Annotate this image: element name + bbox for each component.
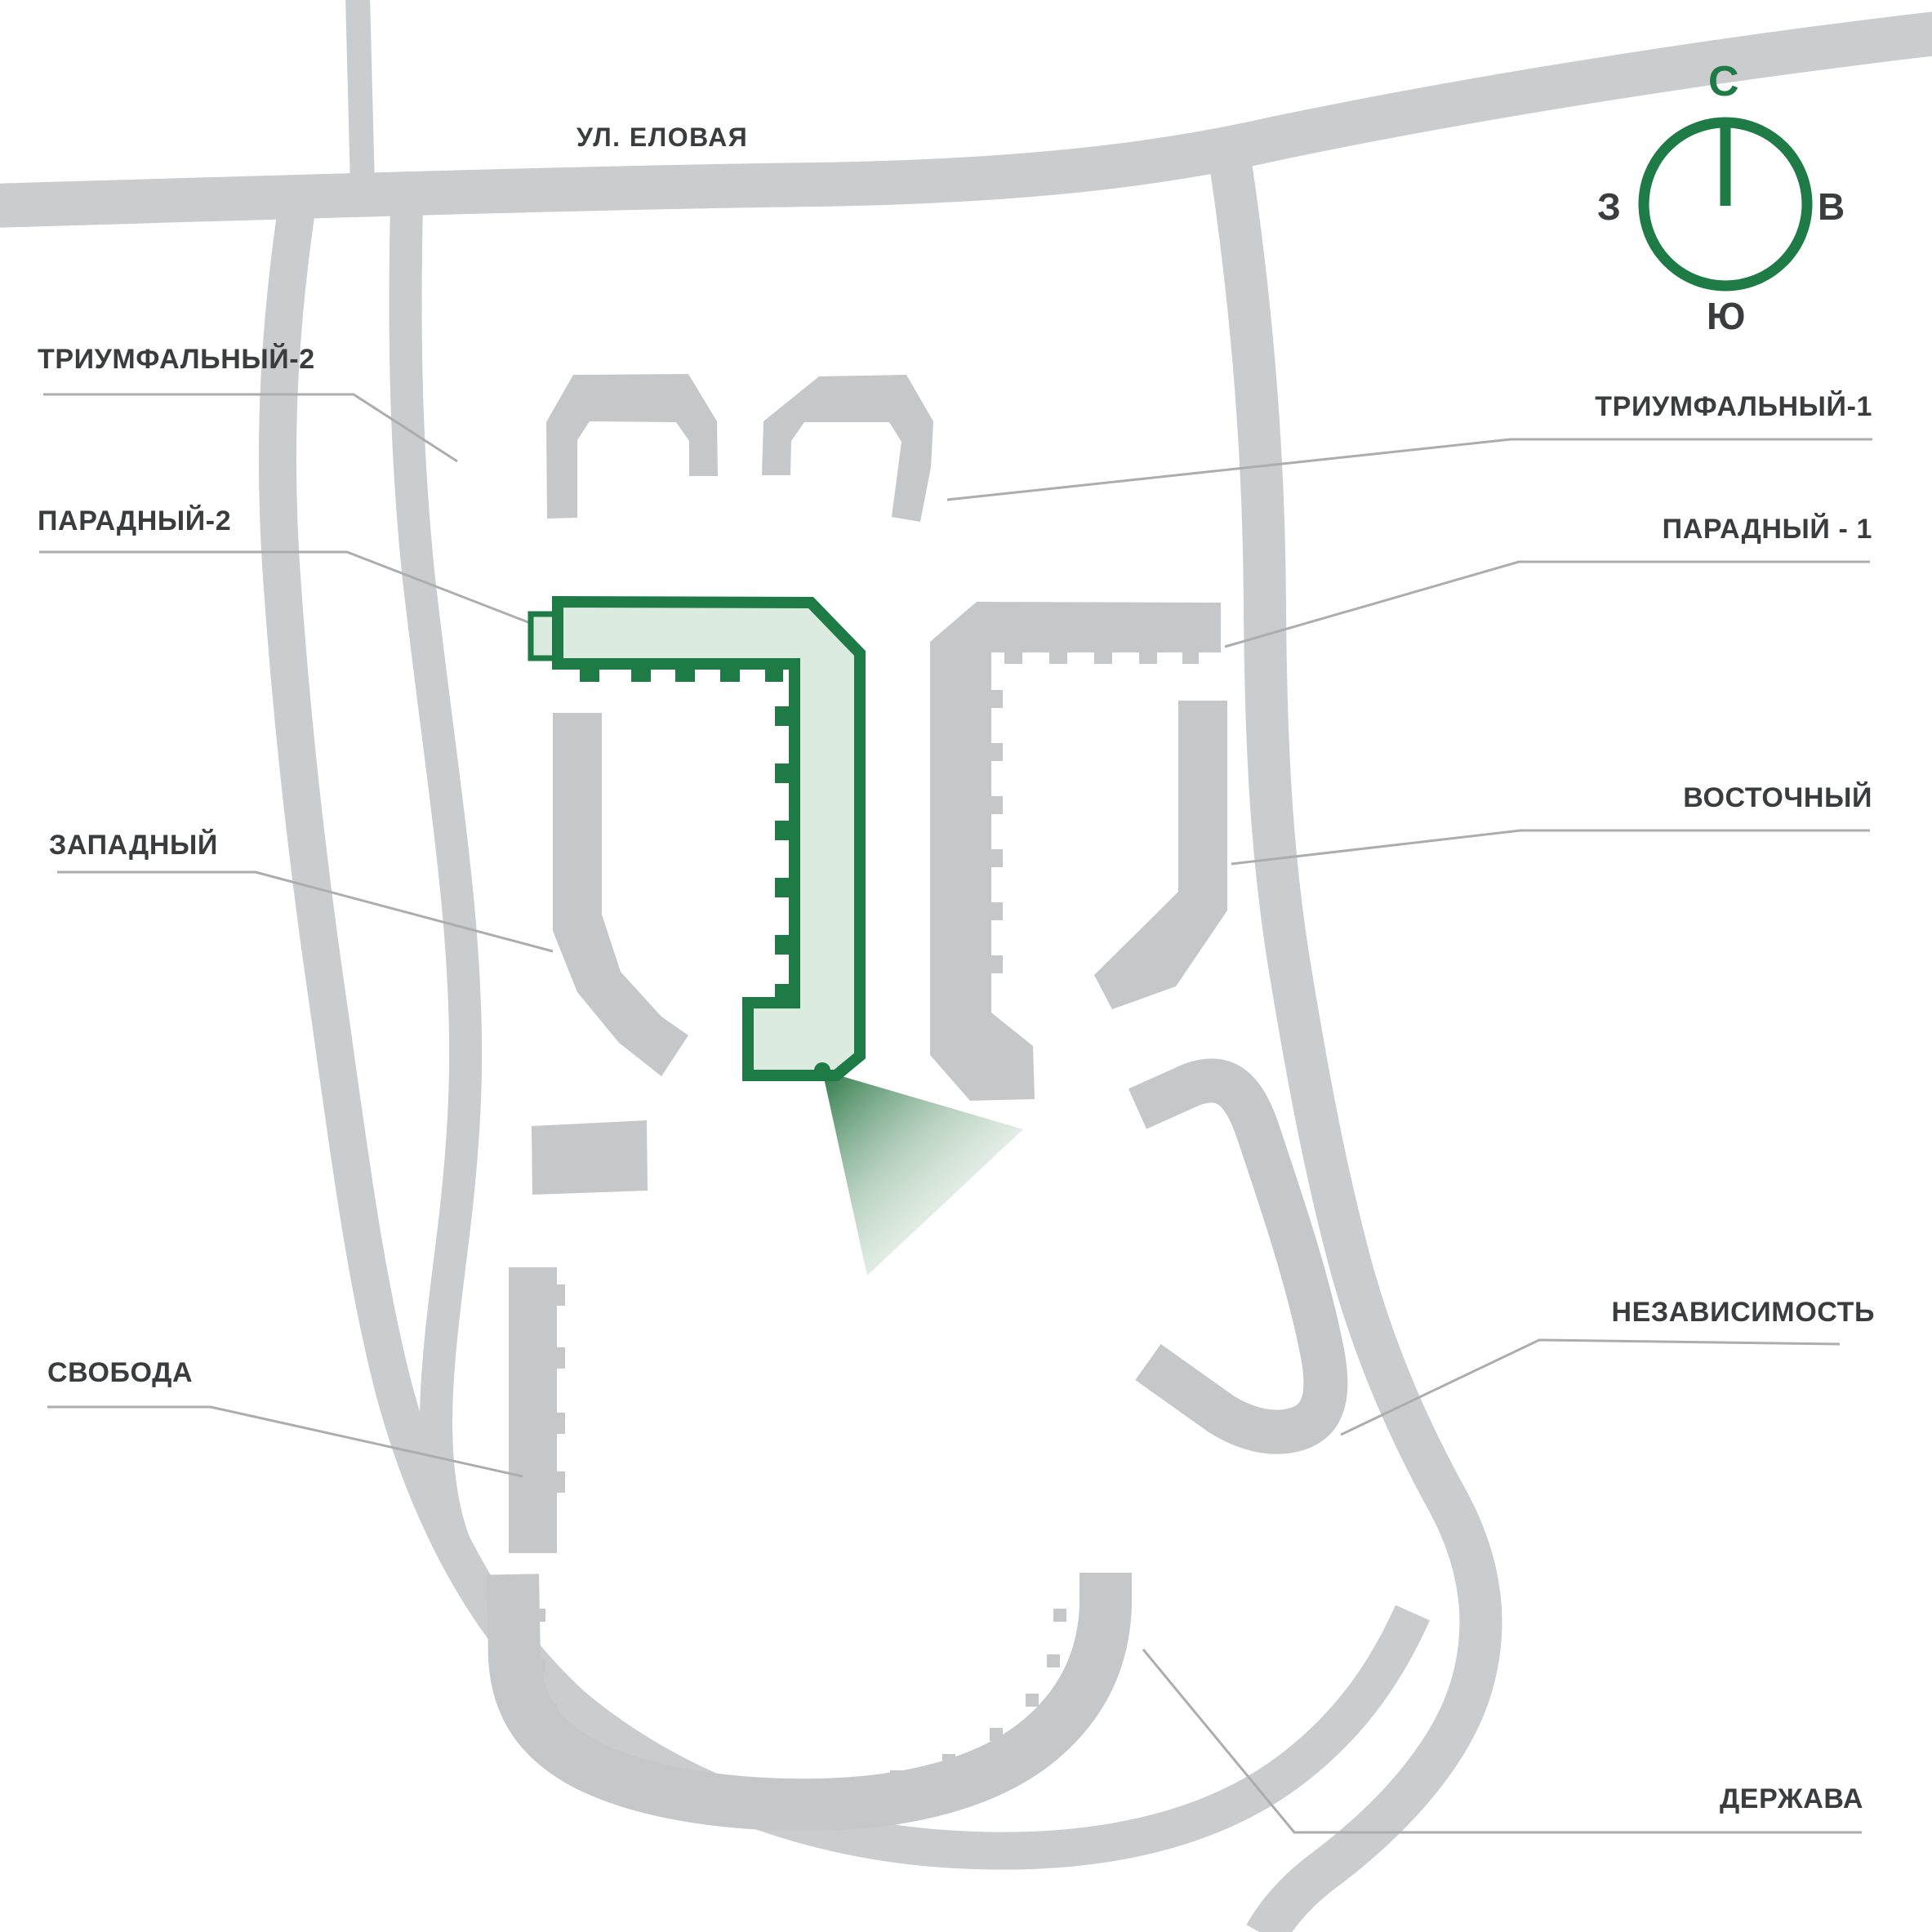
building-zapadny[interactable]	[553, 713, 688, 1076]
label-nezavisimost: НЕЗАВИСИМОСТЬ	[1611, 1297, 1875, 1329]
view-point-dot	[814, 1062, 830, 1079]
label-triumfalny-1: ТРИУМФАЛЬНЫЙ-1	[1595, 391, 1872, 423]
road-north-branch	[358, 0, 363, 186]
label-vostochny: ВОСТОЧНЫЙ	[1683, 782, 1872, 814]
label-derzhava: ДЕРЖАВА	[1720, 1783, 1863, 1815]
compass-south-label: Ю	[1707, 294, 1745, 338]
road-inner-west	[406, 207, 510, 1629]
leader-vostochny	[1231, 830, 1870, 864]
building-triumfalny-2[interactable]	[546, 374, 718, 519]
building-derzhava[interactable]	[513, 1573, 1106, 1805]
compass	[1644, 122, 1807, 286]
label-zapadny: ЗАПАДНЫЙ	[49, 830, 218, 861]
label-paradny-1: ПАРАДНЫЙ - 1	[1663, 514, 1872, 545]
building-nezavisimost[interactable]	[1137, 1080, 1325, 1431]
label-triumfalny-2: ТРИУМФАЛЬНЫЙ-2	[38, 344, 315, 376]
compass-north-label: С	[1708, 57, 1739, 106]
masterplan-map: УЛ. ЕЛОВАЯ ТРИУМФАЛЬНЫЙ-2 ПАРАДНЫЙ-2 ЗАП…	[0, 0, 1932, 1932]
compass-west-label: З	[1597, 185, 1621, 229]
road-east	[1230, 158, 1480, 1932]
view-cone	[822, 1071, 1023, 1275]
street-label-elovaya: УЛ. ЕЛОВАЯ	[576, 122, 748, 153]
compass-east-label: В	[1818, 185, 1845, 229]
building-paradny-1[interactable]	[930, 602, 1221, 1101]
buildings	[509, 374, 1325, 1805]
label-paradny-2: ПАРАДНЫЙ-2	[38, 505, 231, 537]
building-svoboda[interactable]	[509, 1267, 565, 1553]
building-vostochny[interactable]	[1094, 701, 1227, 1009]
building-service[interactable]	[532, 1120, 648, 1195]
leader-triumfalny-1	[947, 439, 1872, 500]
building-triumfalny-1[interactable]	[762, 375, 933, 522]
label-svoboda: СВОБОДА	[47, 1357, 193, 1389]
leader-paradny-1	[1225, 562, 1870, 647]
